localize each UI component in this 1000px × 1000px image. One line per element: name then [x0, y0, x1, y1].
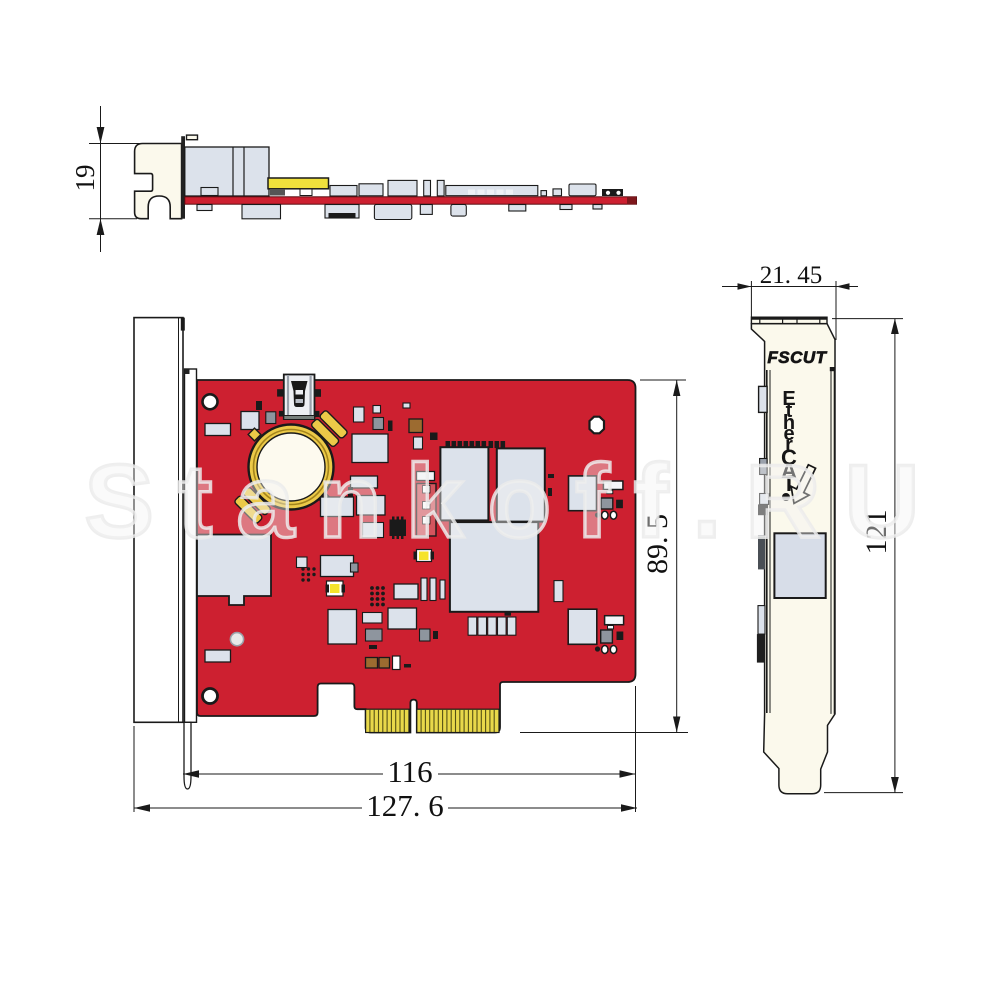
svg-text:127. 6: 127. 6 [366, 788, 444, 823]
svg-text:21. 45: 21. 45 [760, 262, 823, 289]
svg-text:Stankoff.RU: Stankoff.RU [84, 444, 943, 560]
svg-text:19: 19 [70, 165, 100, 192]
svg-text:FSCUT: FSCUT [767, 348, 827, 367]
svg-text:116: 116 [387, 754, 432, 789]
